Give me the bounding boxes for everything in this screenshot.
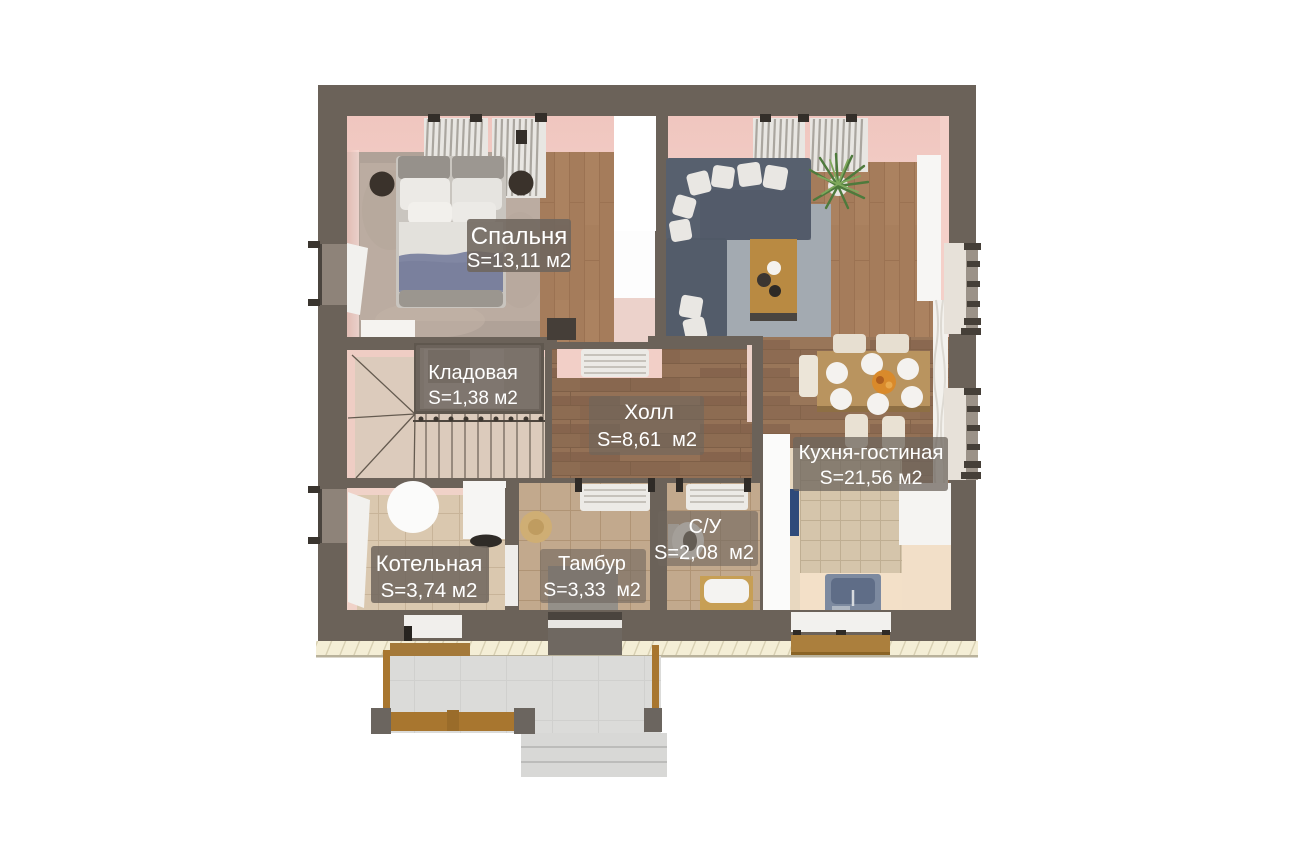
svg-text:Котельная: Котельная [376, 551, 483, 576]
svg-text:Кладовая: Кладовая [428, 362, 518, 384]
svg-text:С/У: С/У [689, 516, 722, 538]
svg-text:Тамбур: Тамбур [558, 553, 626, 575]
svg-text:S=21,56 м2: S=21,56 м2 [820, 467, 923, 489]
svg-text:Холл: Холл [624, 401, 674, 424]
svg-text:S=2,08 м2: S=2,08 м2 [654, 542, 754, 564]
svg-text:Кухня-гостиная: Кухня-гостиная [798, 441, 943, 464]
svg-text:S=8,61 м2: S=8,61 м2 [597, 429, 697, 451]
svg-text:S=3,33 м2: S=3,33 м2 [543, 579, 640, 601]
svg-text:S=1,38 м2: S=1,38 м2 [428, 388, 518, 409]
svg-text:S=13,11 м2: S=13,11 м2 [467, 250, 571, 272]
svg-text:S=3,74 м2: S=3,74 м2 [381, 579, 478, 602]
svg-text:Спальня: Спальня [471, 223, 567, 250]
